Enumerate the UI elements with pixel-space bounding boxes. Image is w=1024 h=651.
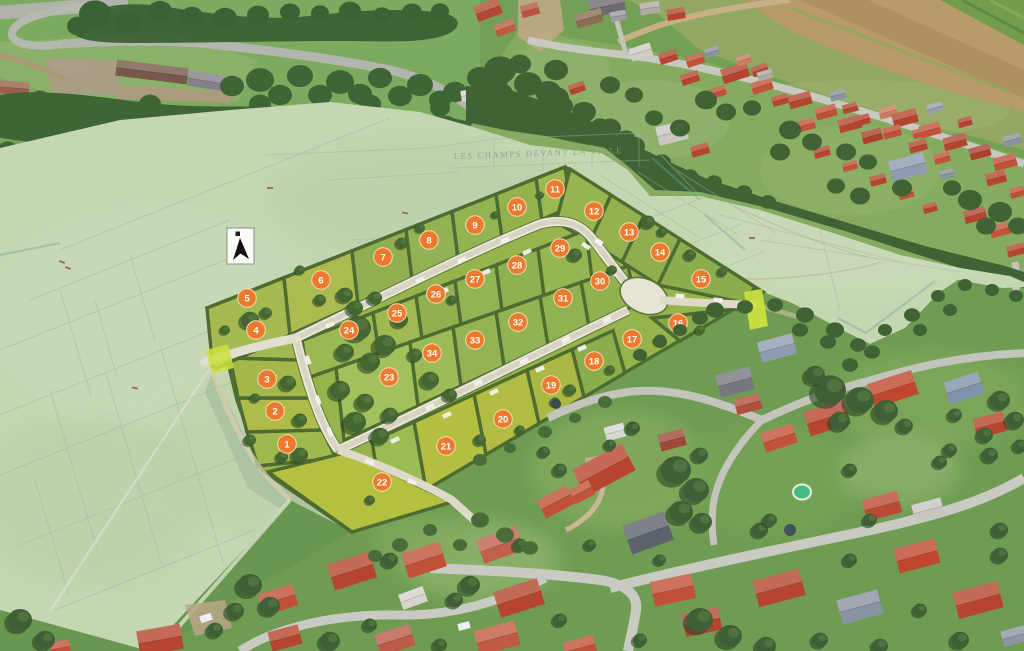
svg-text:33: 33 [470,335,481,346]
svg-text:32: 32 [513,317,524,328]
svg-text:20: 20 [498,414,509,425]
svg-text:14: 14 [655,247,666,258]
svg-text:4: 4 [253,325,259,336]
svg-text:26: 26 [431,289,442,300]
svg-text:25: 25 [392,308,403,319]
svg-text:21: 21 [441,441,452,452]
svg-text:34: 34 [427,348,438,359]
svg-text:17: 17 [627,334,638,345]
svg-text:23: 23 [384,372,395,383]
svg-text:15: 15 [696,274,707,285]
svg-text:11: 11 [550,184,561,195]
svg-text:2: 2 [272,406,277,417]
svg-text:6: 6 [318,275,323,286]
svg-text:27: 27 [470,274,481,285]
svg-text:3: 3 [264,374,269,385]
svg-text:9: 9 [472,220,477,231]
svg-text:13: 13 [624,227,635,238]
svg-text:5: 5 [244,293,250,304]
svg-text:1: 1 [284,439,290,450]
svg-text:22: 22 [377,477,388,488]
svg-text:24: 24 [344,325,355,336]
svg-text:18: 18 [589,356,600,367]
svg-text:10: 10 [512,202,523,213]
svg-text:8: 8 [426,235,431,246]
svg-text:29: 29 [555,243,566,254]
svg-text:19: 19 [546,380,557,391]
svg-text:12: 12 [589,206,600,217]
svg-text:31: 31 [558,293,569,304]
svg-text:30: 30 [595,276,606,287]
svg-text:7: 7 [380,252,385,263]
svg-text:28: 28 [512,260,523,271]
